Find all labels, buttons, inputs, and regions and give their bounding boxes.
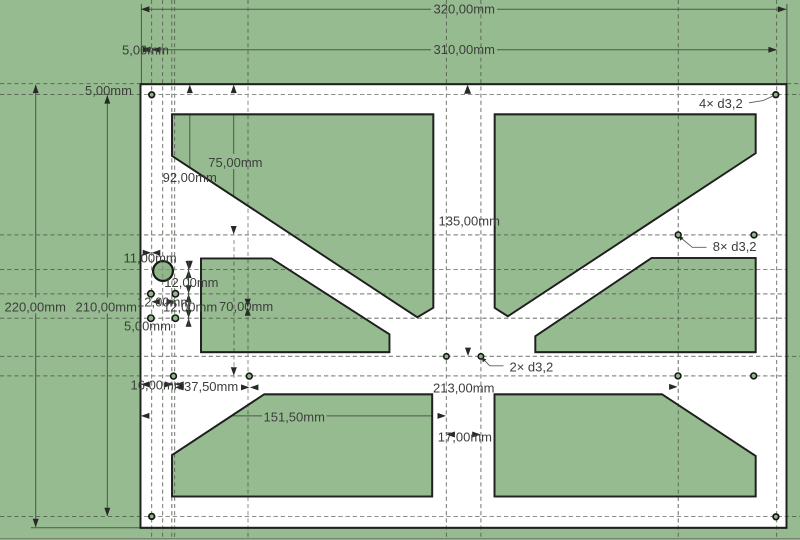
svg-text:5,00mm: 5,00mm: [122, 42, 169, 57]
svg-text:12,00mm: 12,00mm: [164, 275, 218, 290]
svg-text:70,00mm: 70,00mm: [219, 299, 273, 314]
svg-text:11,00mm: 11,00mm: [124, 251, 177, 266]
svg-text:12,00mm: 12,00mm: [163, 300, 217, 315]
svg-text:8× d3,2: 8× d3,2: [713, 239, 757, 254]
svg-text:213,00mm: 213,00mm: [433, 380, 494, 395]
svg-text:4× d3,2: 4× d3,2: [699, 96, 743, 111]
svg-text:135,00mm: 135,00mm: [439, 213, 500, 228]
svg-text:37,50mm: 37,50mm: [184, 379, 238, 394]
svg-text:16,00mm: 16,00mm: [131, 377, 185, 392]
svg-text:17,00mm: 17,00mm: [438, 430, 492, 445]
svg-text:310,00mm: 310,00mm: [434, 42, 495, 57]
svg-text:220,00mm: 220,00mm: [5, 300, 66, 315]
svg-text:151,50mm: 151,50mm: [264, 410, 325, 425]
svg-text:320,00mm: 320,00mm: [434, 1, 495, 16]
svg-text:92,00mm: 92,00mm: [163, 170, 217, 185]
svg-text:5,00mm: 5,00mm: [85, 83, 132, 98]
svg-text:5,00mm: 5,00mm: [124, 318, 171, 333]
svg-text:210,00mm: 210,00mm: [76, 300, 137, 315]
svg-text:2× d3,2: 2× d3,2: [510, 360, 554, 375]
svg-text:75,00mm: 75,00mm: [208, 155, 262, 170]
